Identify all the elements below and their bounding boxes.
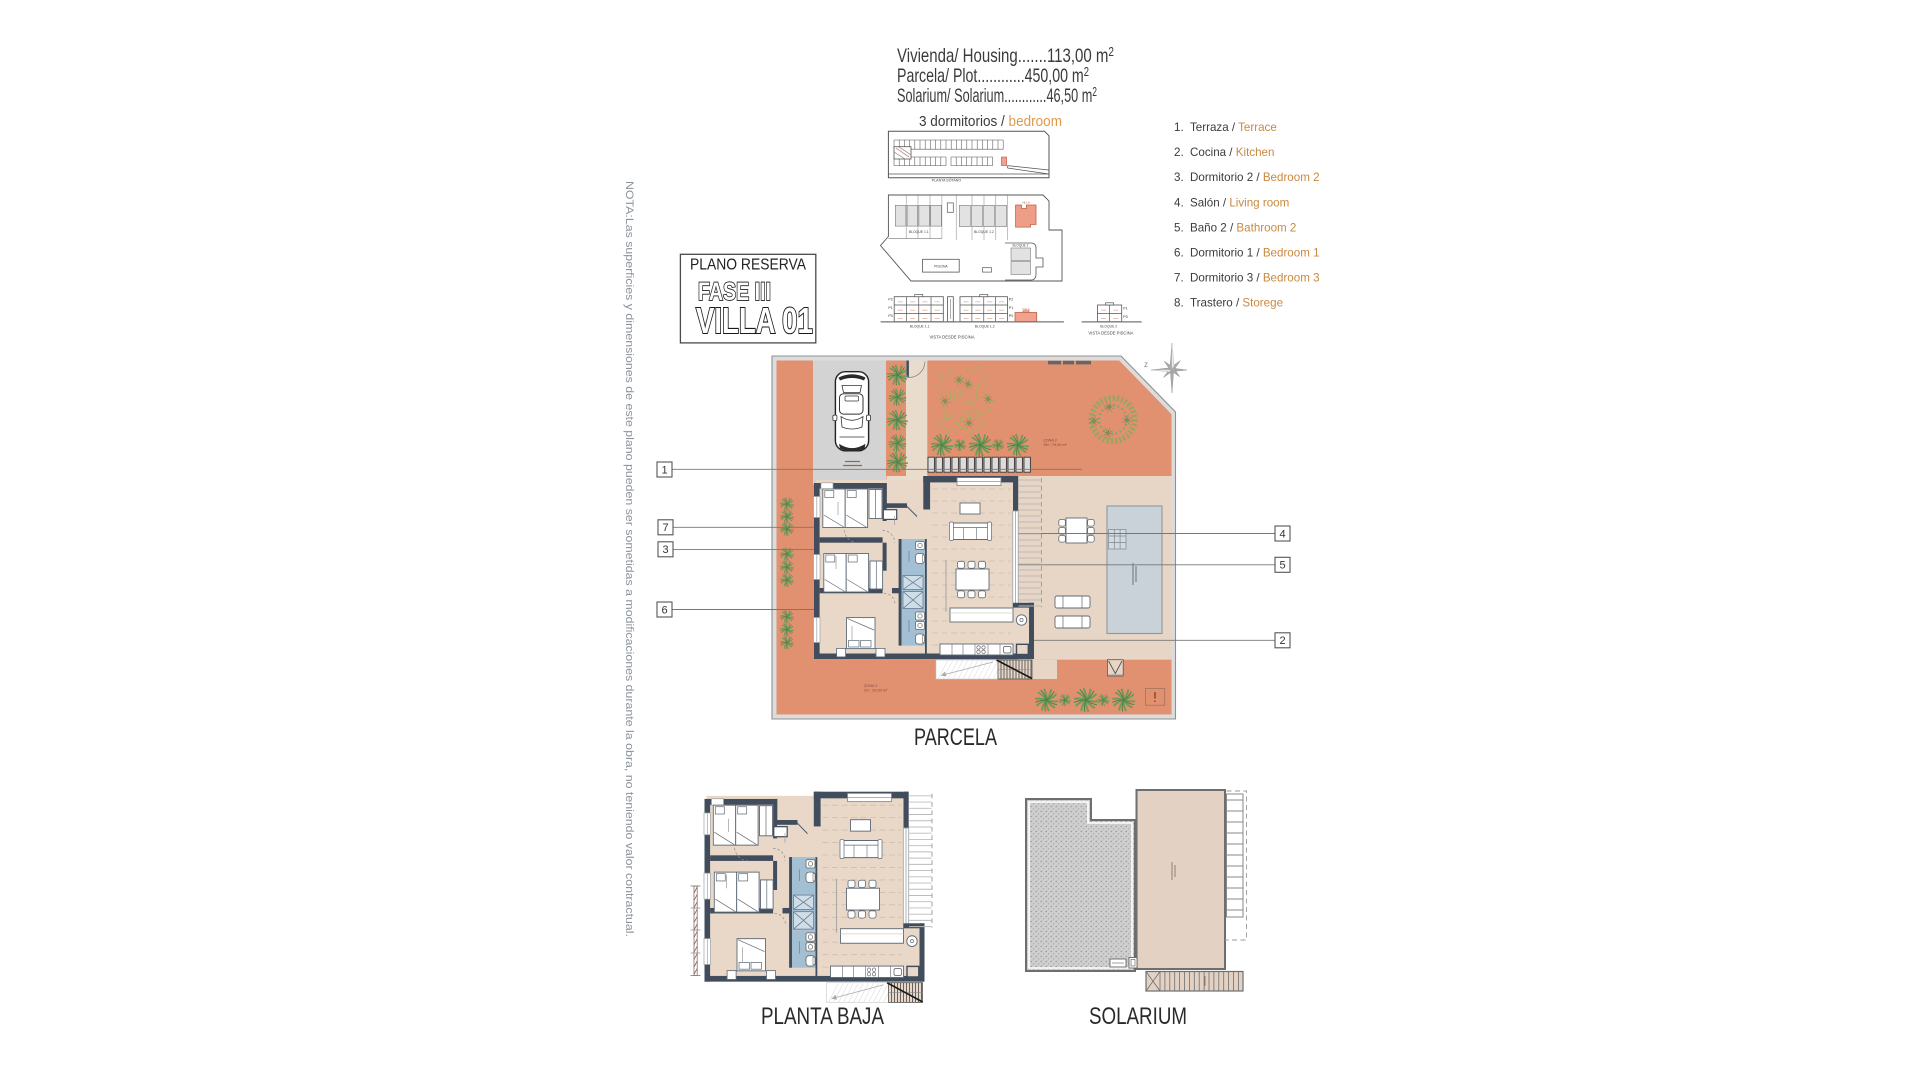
- svg-text:PLANTA BAJA: PLANTA BAJA: [761, 1003, 884, 1030]
- svg-text:NOTA:Las superficies y dimensi: NOTA:Las superficies y dimensiones de es…: [623, 181, 635, 937]
- svg-text:ZONA 1: ZONA 1: [864, 684, 878, 688]
- svg-text:VILLA: VILLA: [1022, 201, 1030, 205]
- svg-text:P0: P0: [888, 314, 892, 318]
- svg-text:BLOQUE 1.1: BLOQUE 1.1: [910, 325, 930, 329]
- svg-text:BLOQUE 2: BLOQUE 2: [1100, 325, 1117, 329]
- svg-text:6: 6: [661, 604, 667, 616]
- svg-text:BLOQUE 1.1: BLOQUE 1.1: [909, 230, 929, 234]
- svg-text:P1: P1: [888, 306, 892, 310]
- svg-text:Solarium/ Solarium............: Solarium/ Solarium............46,50 m2: [897, 84, 1097, 107]
- svg-text:8.Trastero / Storege: 8.Trastero / Storege: [1174, 297, 1283, 310]
- svg-text:4.Salón / Living room: 4.Salón / Living room: [1174, 196, 1289, 209]
- svg-text:P1: P1: [1123, 307, 1127, 311]
- svg-text:VILLA 01: VILLA 01: [696, 300, 813, 341]
- svg-text:PISCINA: PISCINA: [934, 265, 948, 269]
- svg-text:5.Baño 2 / Bathroom 2: 5.Baño 2 / Bathroom 2: [1174, 221, 1296, 234]
- svg-text:5: 5: [1279, 560, 1285, 572]
- svg-text:BLOQUE 1.2: BLOQUE 1.2: [974, 230, 994, 234]
- svg-text:1.Terraza / Terrace: 1.Terraza / Terrace: [1174, 121, 1277, 134]
- svg-text:SOLARIUM: SOLARIUM: [1089, 1003, 1187, 1030]
- svg-text:2: 2: [1279, 635, 1285, 647]
- svg-text:7.Dormitorio 3 / Bedroom 3: 7.Dormitorio 3 / Bedroom 3: [1174, 272, 1320, 285]
- svg-text:PARCELA: PARCELA: [914, 724, 997, 751]
- svg-text:VISTA DESDE PISCINA: VISTA DESDE PISCINA: [1088, 331, 1133, 336]
- svg-text:P2: P2: [888, 298, 892, 302]
- svg-text:3 dormitorios / bedroom: 3 dormitorios / bedroom: [919, 114, 1062, 130]
- svg-text:z: z: [1144, 360, 1148, 369]
- svg-text:P2: P2: [1009, 298, 1013, 302]
- svg-text:P0: P0: [1123, 315, 1127, 319]
- svg-text:Parcela/ Plot............450,0: Parcela/ Plot............450,00 m2: [897, 64, 1089, 87]
- svg-text:SV : 92,00 m²: SV : 92,00 m²: [864, 689, 888, 693]
- svg-text:7: 7: [662, 522, 668, 534]
- svg-text:VILLA: VILLA: [1022, 307, 1030, 311]
- svg-text:6.Dormitorio 1 / Bedroom 1: 6.Dormitorio 1 / Bedroom 1: [1174, 247, 1320, 260]
- svg-text:ZONA 2: ZONA 2: [1043, 439, 1057, 443]
- svg-text:BLOQUE 2: BLOQUE 2: [1013, 244, 1029, 248]
- svg-text:PLANTA SÓTANO: PLANTA SÓTANO: [932, 178, 962, 183]
- svg-text:Vivienda/ Housing.......113,00: Vivienda/ Housing.......113,00 m2: [897, 44, 1114, 67]
- svg-text:BLOQUE 1.2: BLOQUE 1.2: [975, 325, 995, 329]
- svg-text:SN : 79,00 m²: SN : 79,00 m²: [1043, 443, 1067, 447]
- svg-text:PLANO RESERVA: PLANO RESERVA: [690, 257, 807, 274]
- svg-text:3.Dormitorio 2 / Bedroom 2: 3.Dormitorio 2 / Bedroom 2: [1174, 171, 1320, 184]
- svg-text:1: 1: [661, 464, 667, 476]
- svg-text:3: 3: [662, 544, 668, 556]
- svg-text:2.Cocina / Kitchen: 2.Cocina / Kitchen: [1174, 146, 1274, 159]
- svg-text:P0: P0: [1009, 314, 1013, 318]
- svg-text:P1: P1: [1009, 306, 1013, 310]
- svg-text:VISTA DESDE PISCINA: VISTA DESDE PISCINA: [929, 335, 974, 340]
- svg-text:4: 4: [1279, 528, 1285, 540]
